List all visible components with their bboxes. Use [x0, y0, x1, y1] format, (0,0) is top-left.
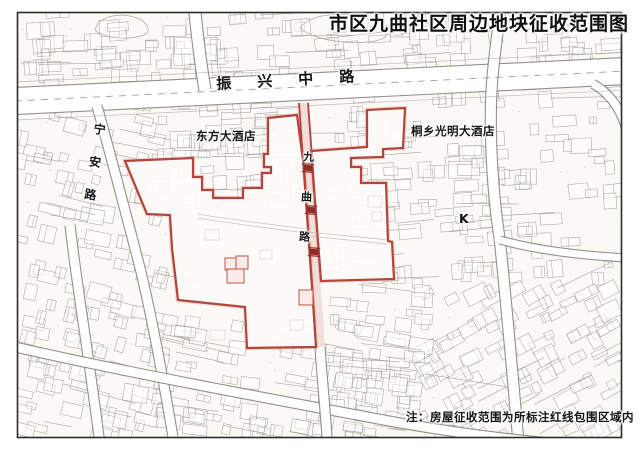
marked-building-outline — [236, 256, 248, 269]
marked-building-outline — [227, 269, 244, 283]
map-canvas — [0, 0, 640, 452]
map-title: 市区九曲社区周边地块征收范围图 — [329, 15, 629, 34]
marked-building-outline — [225, 258, 236, 270]
label-dongfang-hotel: 东方大酒店 — [196, 131, 256, 143]
map-note: 注：房屋征收范围为所标注红线包围区域内 — [406, 412, 634, 424]
landmark-k-label: K — [459, 213, 469, 226]
land-acquisition-map-page: 振兴中路 宁安路 九曲路 东方大酒店 桐乡光明大酒店 K 市区九曲社区周边地块征… — [0, 0, 640, 452]
label-tongxiang-guangming-hotel: 桐乡光明大酒店 — [411, 126, 495, 138]
marked-building-outline — [299, 290, 313, 305]
